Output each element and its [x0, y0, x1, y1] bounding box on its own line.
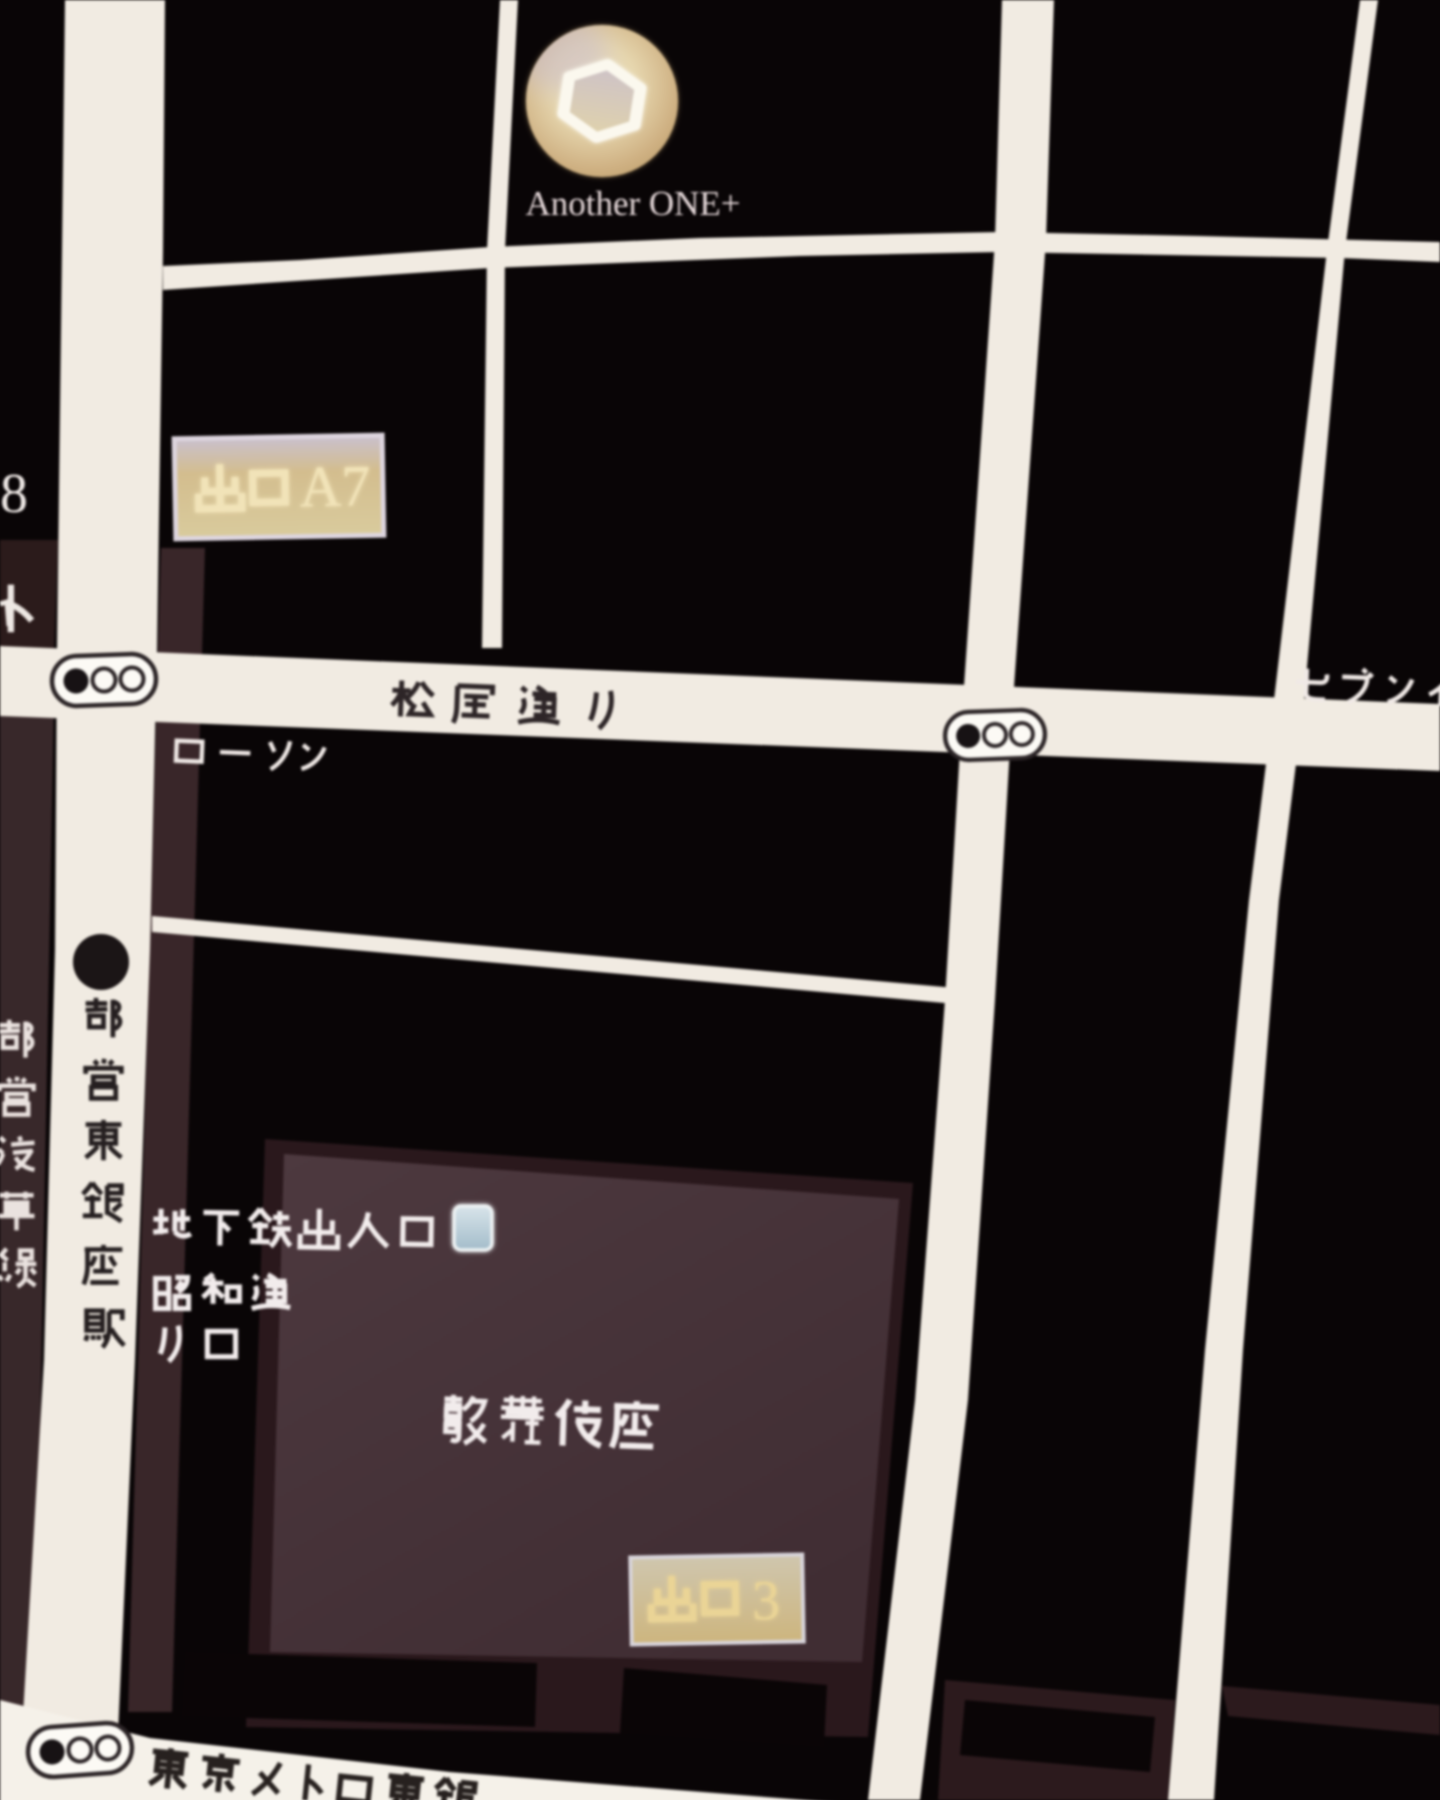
svg-text:8: 8 [0, 463, 28, 525]
svg-text:Another ONE+: Another ONE+ [525, 184, 740, 223]
svg-text:3: 3 [752, 1570, 781, 1632]
svg-text:A7: A7 [299, 453, 371, 519]
